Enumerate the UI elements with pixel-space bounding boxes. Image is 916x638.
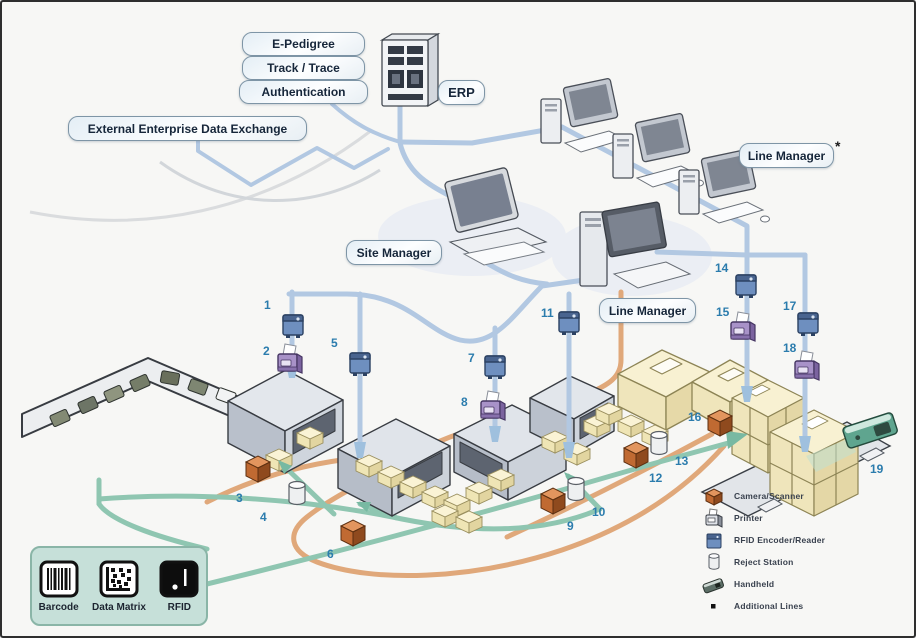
legend-label: RFID bbox=[168, 602, 191, 613]
step-number-13: 13 bbox=[675, 455, 688, 467]
decorative-swoosh-curves bbox=[30, 130, 380, 220]
step-number-11: 11 bbox=[541, 307, 554, 319]
legend-row-additional-lines: Additional Lines bbox=[702, 595, 852, 617]
legend-cell-data-matrix: Data Matrix bbox=[92, 560, 146, 613]
step-number-1: 1 bbox=[264, 299, 271, 311]
legend-label: Barcode bbox=[39, 602, 79, 613]
step-number-4: 4 bbox=[260, 511, 267, 523]
device-legend: Camera/Scanner Printer RFID Encoder/Read… bbox=[702, 485, 852, 617]
printer-icon bbox=[702, 508, 726, 528]
handheld-icon bbox=[702, 574, 726, 594]
additional-lines-icon bbox=[702, 596, 726, 616]
legend-row-rfid-encoder-reader: RFID Encoder/Reader bbox=[702, 529, 852, 551]
step-number-19: 19 bbox=[870, 463, 883, 475]
additional-lines-asterisk: * bbox=[835, 138, 840, 154]
legend-cell-rfid: RFID bbox=[159, 560, 199, 613]
legend-row-camera-scanner: Camera/Scanner bbox=[702, 485, 852, 507]
step-number-10: 10 bbox=[592, 506, 605, 518]
legend-cell-barcode: Barcode bbox=[39, 560, 79, 613]
legend-label: Additional Lines bbox=[734, 601, 803, 611]
legend-row-reject-station: Reject Station bbox=[702, 551, 852, 573]
label-e-pedigree: E-Pedigree bbox=[242, 32, 365, 56]
step-number-6: 6 bbox=[327, 548, 334, 560]
barcode-icon bbox=[39, 560, 79, 600]
legend-row-printer: Printer bbox=[702, 507, 852, 529]
step-number-7: 7 bbox=[468, 352, 475, 364]
label-authentication: Authentication bbox=[239, 80, 368, 104]
code-symbology-legend: Barcode Data Matrix RFID bbox=[30, 546, 208, 626]
step-number-2: 2 bbox=[263, 345, 270, 357]
label-line-manager-top: Line Manager bbox=[739, 143, 834, 168]
reject-station-icon bbox=[702, 552, 726, 572]
data-matrix-icon bbox=[99, 560, 139, 600]
step-number-12: 12 bbox=[649, 472, 662, 484]
legend-label: Camera/Scanner bbox=[734, 491, 804, 501]
label-erp: ERP bbox=[438, 80, 485, 105]
step-number-15: 15 bbox=[716, 306, 729, 318]
step-number-17: 17 bbox=[783, 300, 796, 312]
step-number-18: 18 bbox=[783, 342, 796, 354]
legend-label: Handheld bbox=[734, 579, 774, 589]
rfid-tag-icon bbox=[159, 560, 199, 600]
step-number-14: 14 bbox=[715, 262, 728, 274]
step-number-8: 8 bbox=[461, 396, 468, 408]
step-number-9: 9 bbox=[567, 520, 574, 532]
erp-server bbox=[382, 34, 438, 106]
step-number-3: 3 bbox=[236, 492, 243, 504]
legend-label: Data Matrix bbox=[92, 602, 146, 613]
legend-row-handheld: Handheld bbox=[702, 573, 852, 595]
infeed-conveyor bbox=[22, 358, 246, 437]
label-line-manager-center: Line Manager bbox=[599, 298, 696, 323]
legend-label: Reject Station bbox=[734, 557, 793, 567]
step-number-16: 16 bbox=[688, 411, 701, 423]
label-external-enterprise-data-exchange: External Enterprise Data Exchange bbox=[68, 116, 307, 141]
legend-label: Printer bbox=[734, 513, 763, 523]
legend-label: RFID Encoder/Reader bbox=[734, 535, 825, 545]
rfid-encoder-reader-icon bbox=[702, 530, 726, 550]
label-site-manager: Site Manager bbox=[346, 240, 442, 265]
camera-scanner-icon bbox=[702, 486, 726, 506]
label-track-trace: Track / Trace bbox=[242, 56, 365, 80]
track-trace-serialization-diagram: E-Pedigree Track / Trace Authentication … bbox=[0, 0, 916, 638]
step-number-5: 5 bbox=[331, 337, 338, 349]
line-manager-workstations bbox=[541, 78, 770, 223]
